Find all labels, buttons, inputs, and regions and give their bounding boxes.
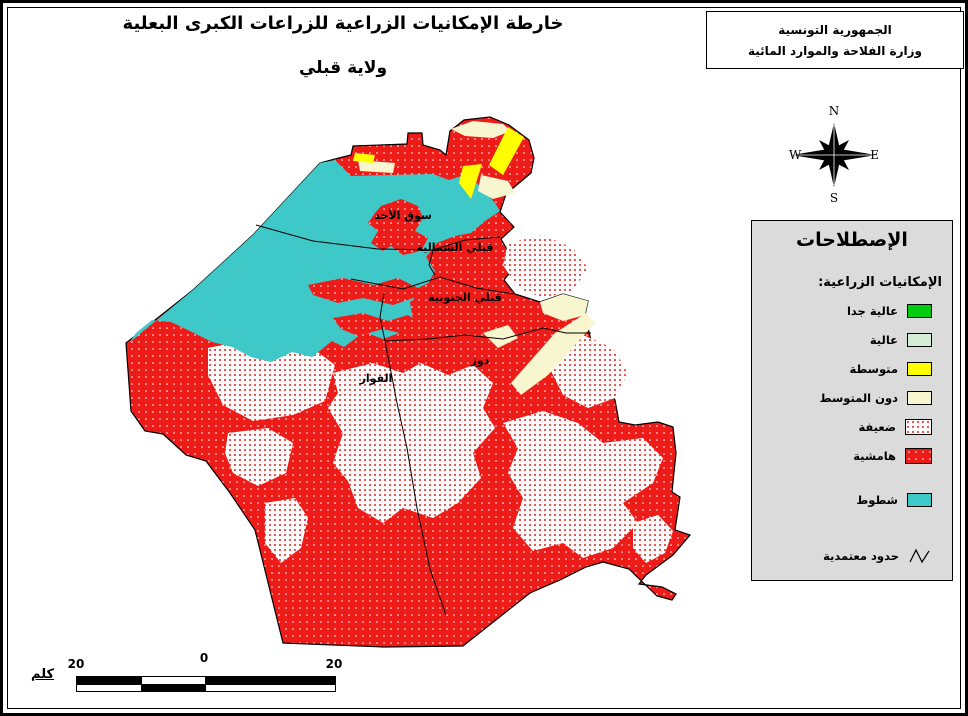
swatch-below-average — [907, 391, 932, 405]
map-label-douz: دوز — [458, 355, 502, 367]
map-document: سوق الأحد قبلي الشمالية قبلي الجنوبية دو… — [0, 0, 968, 716]
compass-rose-icon: N S E W — [787, 101, 881, 205]
page-title-line1: خارطة الإمكانيات الزراعية للزراعات الكبر… — [43, 13, 643, 34]
swatch-high — [907, 333, 932, 347]
compass-north-label: N — [829, 104, 840, 118]
map-label-kebili-north: قبلي الشمالية — [406, 242, 504, 254]
legend-item-chotts: شطوط — [752, 492, 952, 508]
swatch-marginal — [905, 448, 932, 464]
page-title: خارطة الإمكانيات الزراعية للزراعات الكبر… — [43, 13, 643, 78]
map-label-kebili-south: قبلي الجنوبية — [416, 292, 514, 304]
legend-item-medium: متوسطة — [752, 361, 952, 377]
swatch-very-high — [907, 304, 932, 318]
scale-segment — [141, 677, 205, 684]
legend-item-below-average: دون المتوسط — [752, 390, 952, 406]
legend-panel: الإصطلاحات الإمكانيات الزراعية: عالية جد… — [751, 220, 953, 581]
scale-segment — [77, 684, 141, 691]
legend-title: الإصطلاحات — [752, 229, 952, 251]
scale-segment — [205, 677, 335, 684]
scale-tick-left: 20 — [64, 657, 88, 671]
compass-south-label: S — [830, 191, 838, 205]
scale-bar-segments — [76, 676, 336, 692]
scale-segment — [141, 684, 205, 691]
zigzag-boundary-icon — [908, 547, 932, 565]
legend-item-marginal: هامشية — [752, 448, 952, 464]
page-title-line2: ولاية قبلي — [43, 58, 643, 78]
swatch-medium — [907, 362, 932, 376]
legend-item-high: عالية — [752, 332, 952, 348]
compass-east-label: E — [870, 148, 879, 162]
republic-ministry-box: الجمهورية التونسية وزارة الفلاحة والموار… — [706, 11, 964, 69]
scale-segment — [77, 677, 141, 684]
scale-segment — [205, 684, 335, 691]
legend-item-delegation-boundary: حدود معتمدية — [752, 548, 952, 564]
swatch-weak — [905, 419, 932, 435]
scale-tick-zero: 0 — [192, 651, 216, 665]
compass-west-label: W — [789, 148, 802, 162]
scale-unit-label: كلم — [31, 667, 54, 682]
scale-tick-right: 20 — [322, 657, 346, 671]
legend-item-weak: ضعيفة — [752, 419, 952, 435]
republic-line: الجمهورية التونسية — [707, 23, 963, 37]
swatch-chotts — [907, 493, 932, 507]
ministry-line: وزارة الفلاحة والموارد المائية — [707, 44, 963, 58]
legend-item-very-high: عالية جدا — [752, 303, 952, 319]
legend-subtitle: الإمكانيات الزراعية: — [752, 275, 952, 290]
scale-bar: كلم 20 0 20 — [23, 651, 358, 699]
map-label-souk-el-ahad: سوق الأحد — [361, 210, 445, 222]
map-label-el-faouar: الفوار — [347, 373, 405, 385]
